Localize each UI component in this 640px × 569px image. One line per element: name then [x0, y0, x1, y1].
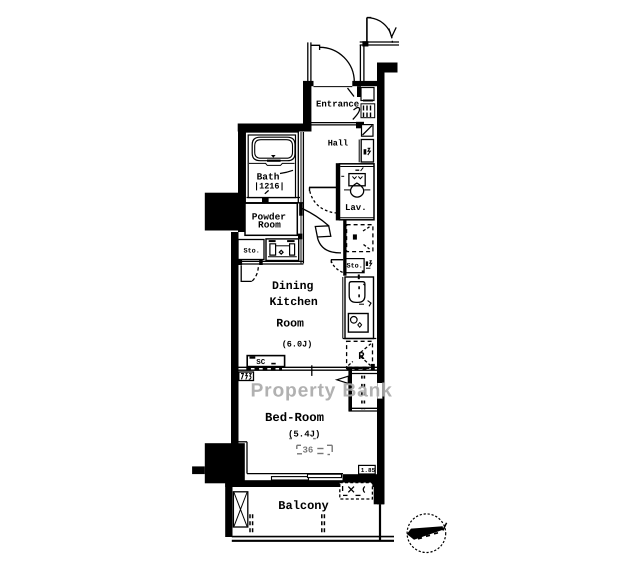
svg-text:SC: SC: [256, 358, 266, 367]
svg-text:36: 36: [303, 446, 314, 456]
svg-text:Property Bank: Property Bank: [251, 380, 393, 401]
svg-text:Dining: Dining: [272, 280, 314, 293]
svg-text:Hall: Hall: [328, 139, 348, 149]
svg-text:Sto.: Sto.: [347, 262, 363, 270]
svg-text:Room: Room: [276, 318, 304, 331]
svg-text:(5.4J): (5.4J): [288, 430, 320, 440]
svg-text:Entrance: Entrance: [316, 100, 359, 110]
svg-text:(6.0J): (6.0J): [282, 339, 313, 349]
svg-text:Bed-Room: Bed-Room: [265, 411, 324, 425]
svg-text:|1216|: |1216|: [254, 182, 285, 192]
svg-text:Lav.: Lav.: [345, 203, 367, 213]
svg-text:Sto.: Sto.: [244, 248, 260, 256]
svg-text:Kitchen: Kitchen: [270, 296, 318, 309]
svg-text:1.85: 1.85: [361, 467, 376, 474]
svg-text:Balcony: Balcony: [278, 499, 328, 513]
svg-text:R: R: [358, 351, 365, 363]
svg-text:Room: Room: [258, 220, 281, 231]
